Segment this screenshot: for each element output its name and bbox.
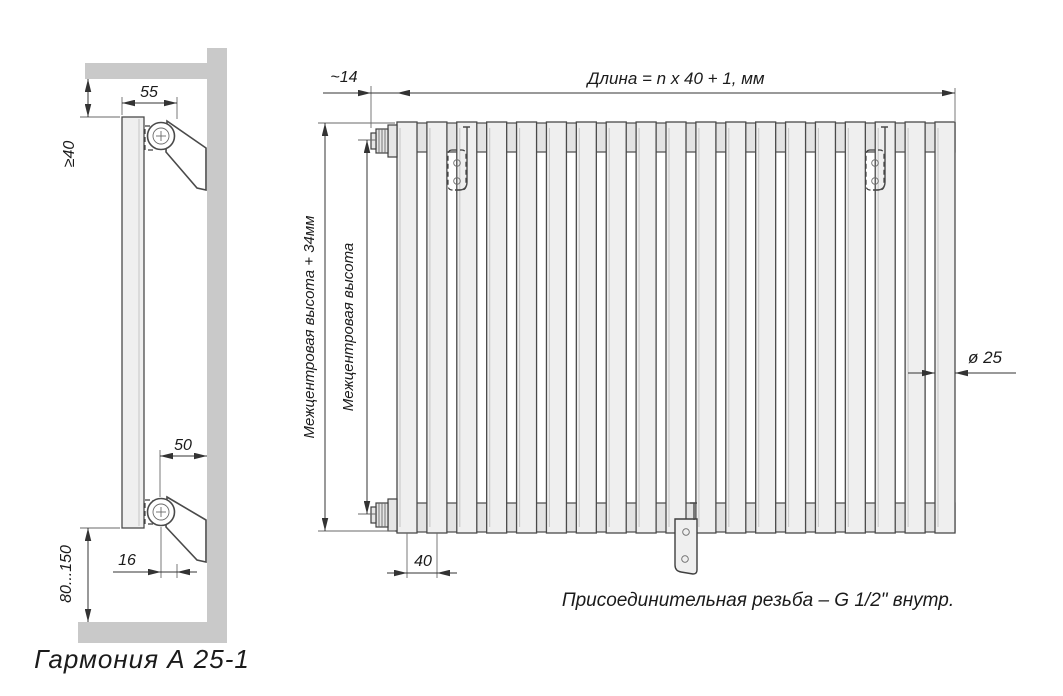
thread-note: Присоединительная резьба – G 1/2" внутр. — [562, 590, 954, 611]
radiator-drawing-page: 55 ≥40 50 16 80...150 Гармония А 25-1 — [0, 0, 1063, 696]
dim-16: 16 — [118, 552, 136, 569]
model-caption: Гармония А 25-1 — [34, 644, 250, 674]
dim-diameter: ø 25 — [968, 348, 1003, 367]
dim-length-formula: Длина = n x 40 + 1, мм — [585, 69, 764, 88]
dim-50: 50 — [174, 437, 192, 454]
side-view: 55 ≥40 50 16 80...150 Гармония А 25-1 — [34, 48, 250, 674]
dim-80-150: 80...150 — [58, 545, 75, 603]
side-tube — [122, 117, 144, 528]
top-fitting — [371, 125, 397, 157]
wall-floor — [78, 622, 227, 643]
wall-shelf — [85, 63, 227, 79]
dim-55: 55 — [140, 84, 158, 101]
front-view: ~14 Длина = n x 40 + 1, мм Межцентровая … — [301, 69, 1016, 611]
dim-height-inner: Межцентровая высота — [340, 243, 357, 412]
radiator-tubes — [397, 122, 955, 533]
dim-ge40: ≥40 — [61, 141, 78, 168]
wall-vertical — [207, 48, 227, 643]
bottom-fitting — [371, 499, 397, 531]
technical-drawing: 55 ≥40 50 16 80...150 Гармония А 25-1 — [0, 0, 1063, 696]
dim-end-offset: ~14 — [330, 69, 357, 86]
dim-pitch: 40 — [414, 553, 432, 570]
dim-height-outer: Межцентровая высота + 34мм — [301, 216, 318, 439]
